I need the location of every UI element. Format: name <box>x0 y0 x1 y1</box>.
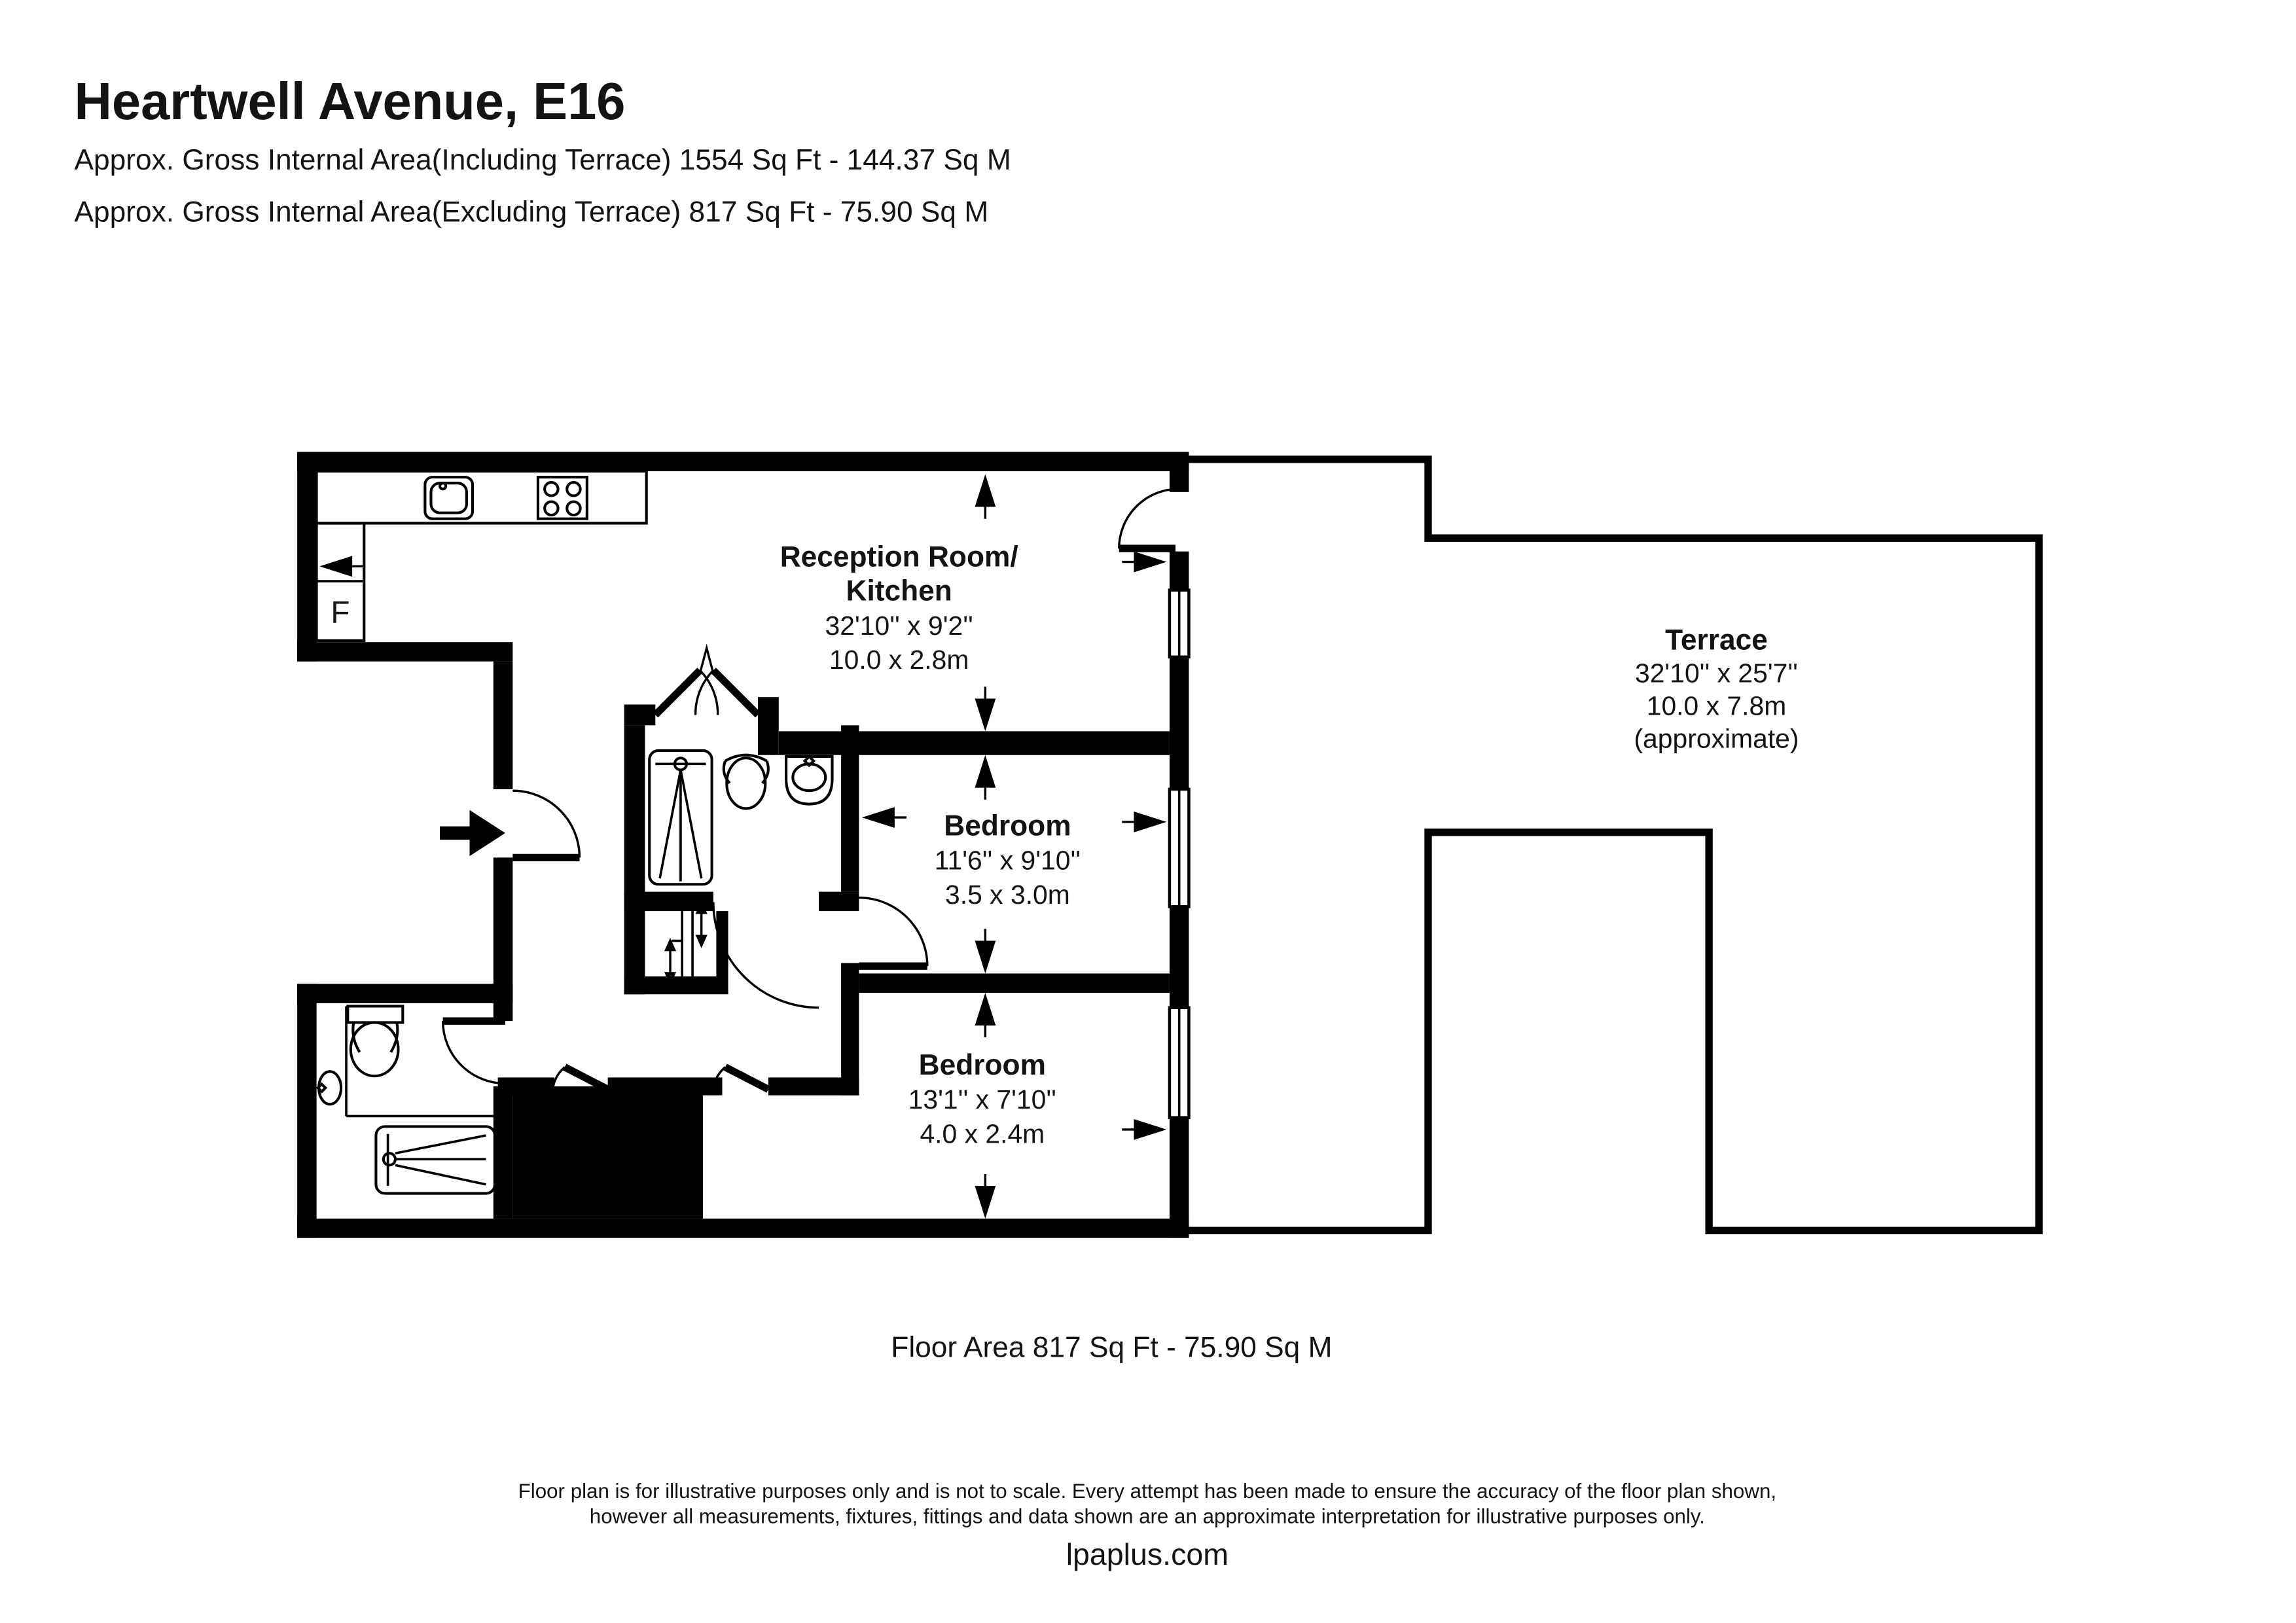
bedroom1-label: Bedroom 11'6'' x 9'10'' 3.5 x 3.0m <box>935 810 1081 909</box>
window-bedroom2 <box>1170 1008 1189 1118</box>
bedroom2-dims-imperial: 13'1'' x 7'10'' <box>908 1084 1056 1115</box>
bedroom2-label: Bedroom 13'1'' x 7'10'' 4.0 x 2.4m <box>908 1049 1056 1149</box>
page-title: Heartwell Avenue, E16 <box>75 72 626 130</box>
wall-jog-bottom <box>297 984 512 1003</box>
gross-area-including: Approx. Gross Internal Area(Including Te… <box>75 144 1011 176</box>
floor-plan-page: Heartwell Avenue, E16 Approx. Gross Inte… <box>0 0 2296 1623</box>
wall-core-block <box>512 1086 703 1219</box>
room-bathroom <box>645 755 841 892</box>
disclaimer-line1: Floor plan is for illustrative purposes … <box>518 1480 1776 1503</box>
wall-left-lower <box>297 984 317 1238</box>
wall-top <box>297 452 1189 472</box>
bedroom1-dims-imperial: 11'6'' x 9'10'' <box>935 846 1081 876</box>
window-reception <box>1170 590 1189 657</box>
website-link: lpaplus.com <box>1066 1537 1229 1571</box>
gross-area-excluding: Approx. Gross Internal Area(Excluding Te… <box>75 196 989 228</box>
window-bedroom1 <box>1170 789 1189 906</box>
wall-left-mid-b <box>493 857 513 1003</box>
bedroom1-dims-metric: 3.5 x 3.0m <box>945 880 1070 910</box>
bedroom2-dims-metric: 4.0 x 2.4m <box>920 1118 1045 1149</box>
reception-name-line1: Reception Room/ <box>780 541 1018 573</box>
wall-bedroom1-left-a <box>841 725 859 891</box>
floor-area-text: Floor Area 817 Sq Ft - 75.90 Sq M <box>891 1331 1332 1363</box>
wall-divider-step <box>758 697 779 755</box>
reception-dims-metric: 10.0 x 2.8m <box>829 645 969 675</box>
wall-right-seg5 <box>1170 1118 1189 1238</box>
wall-divider-stub <box>624 705 656 726</box>
reception-dims-imperial: 32'10'' x 9'2'' <box>825 611 973 641</box>
entrance-door <box>512 791 579 857</box>
reception-name-line2: Kitchen <box>846 575 952 607</box>
bedroom1-name: Bedroom <box>944 810 1071 842</box>
footer: Floor Area 817 Sq Ft - 75.90 Sq M Floor … <box>518 1331 1776 1571</box>
terrace-name: Terrace <box>1665 624 1768 656</box>
disclaimer-line2: however all measurements, fixtures, fitt… <box>590 1505 1705 1528</box>
wall-bathroom-bottom-b <box>819 892 859 912</box>
room-reception-kitchen <box>317 471 1170 704</box>
wall-right-seg1 <box>1170 452 1189 492</box>
floor-plan-canvas: Heartwell Avenue, E16 Approx. Gross Inte… <box>0 0 2296 1623</box>
wall-bathroom2-right-b <box>493 1086 513 1219</box>
wall-bedroom-divider <box>859 973 1170 993</box>
entrance-arrow-icon <box>440 810 505 856</box>
wall-bottom <box>297 1219 1189 1238</box>
header: Heartwell Avenue, E16 Approx. Gross Inte… <box>75 72 1011 228</box>
wall-right-seg2 <box>1170 552 1189 590</box>
wall-left-upper <box>297 452 317 662</box>
bedroom2-name: Bedroom <box>919 1049 1046 1081</box>
terrace-dims-imperial: 32'10'' x 25'7'' <box>1635 658 1798 688</box>
terrace-dims-metric: 10.0 x 7.8m <box>1647 690 1786 721</box>
room-terrace <box>1189 538 2039 1230</box>
fridge-label: F <box>331 596 350 630</box>
room-bathroom2 <box>317 1003 493 1219</box>
wall-reception-divider <box>779 731 1170 755</box>
wall-right-seg3 <box>1170 657 1189 789</box>
terrace-note: (approximate) <box>1634 723 1799 753</box>
wall-right-seg4 <box>1170 906 1189 1007</box>
